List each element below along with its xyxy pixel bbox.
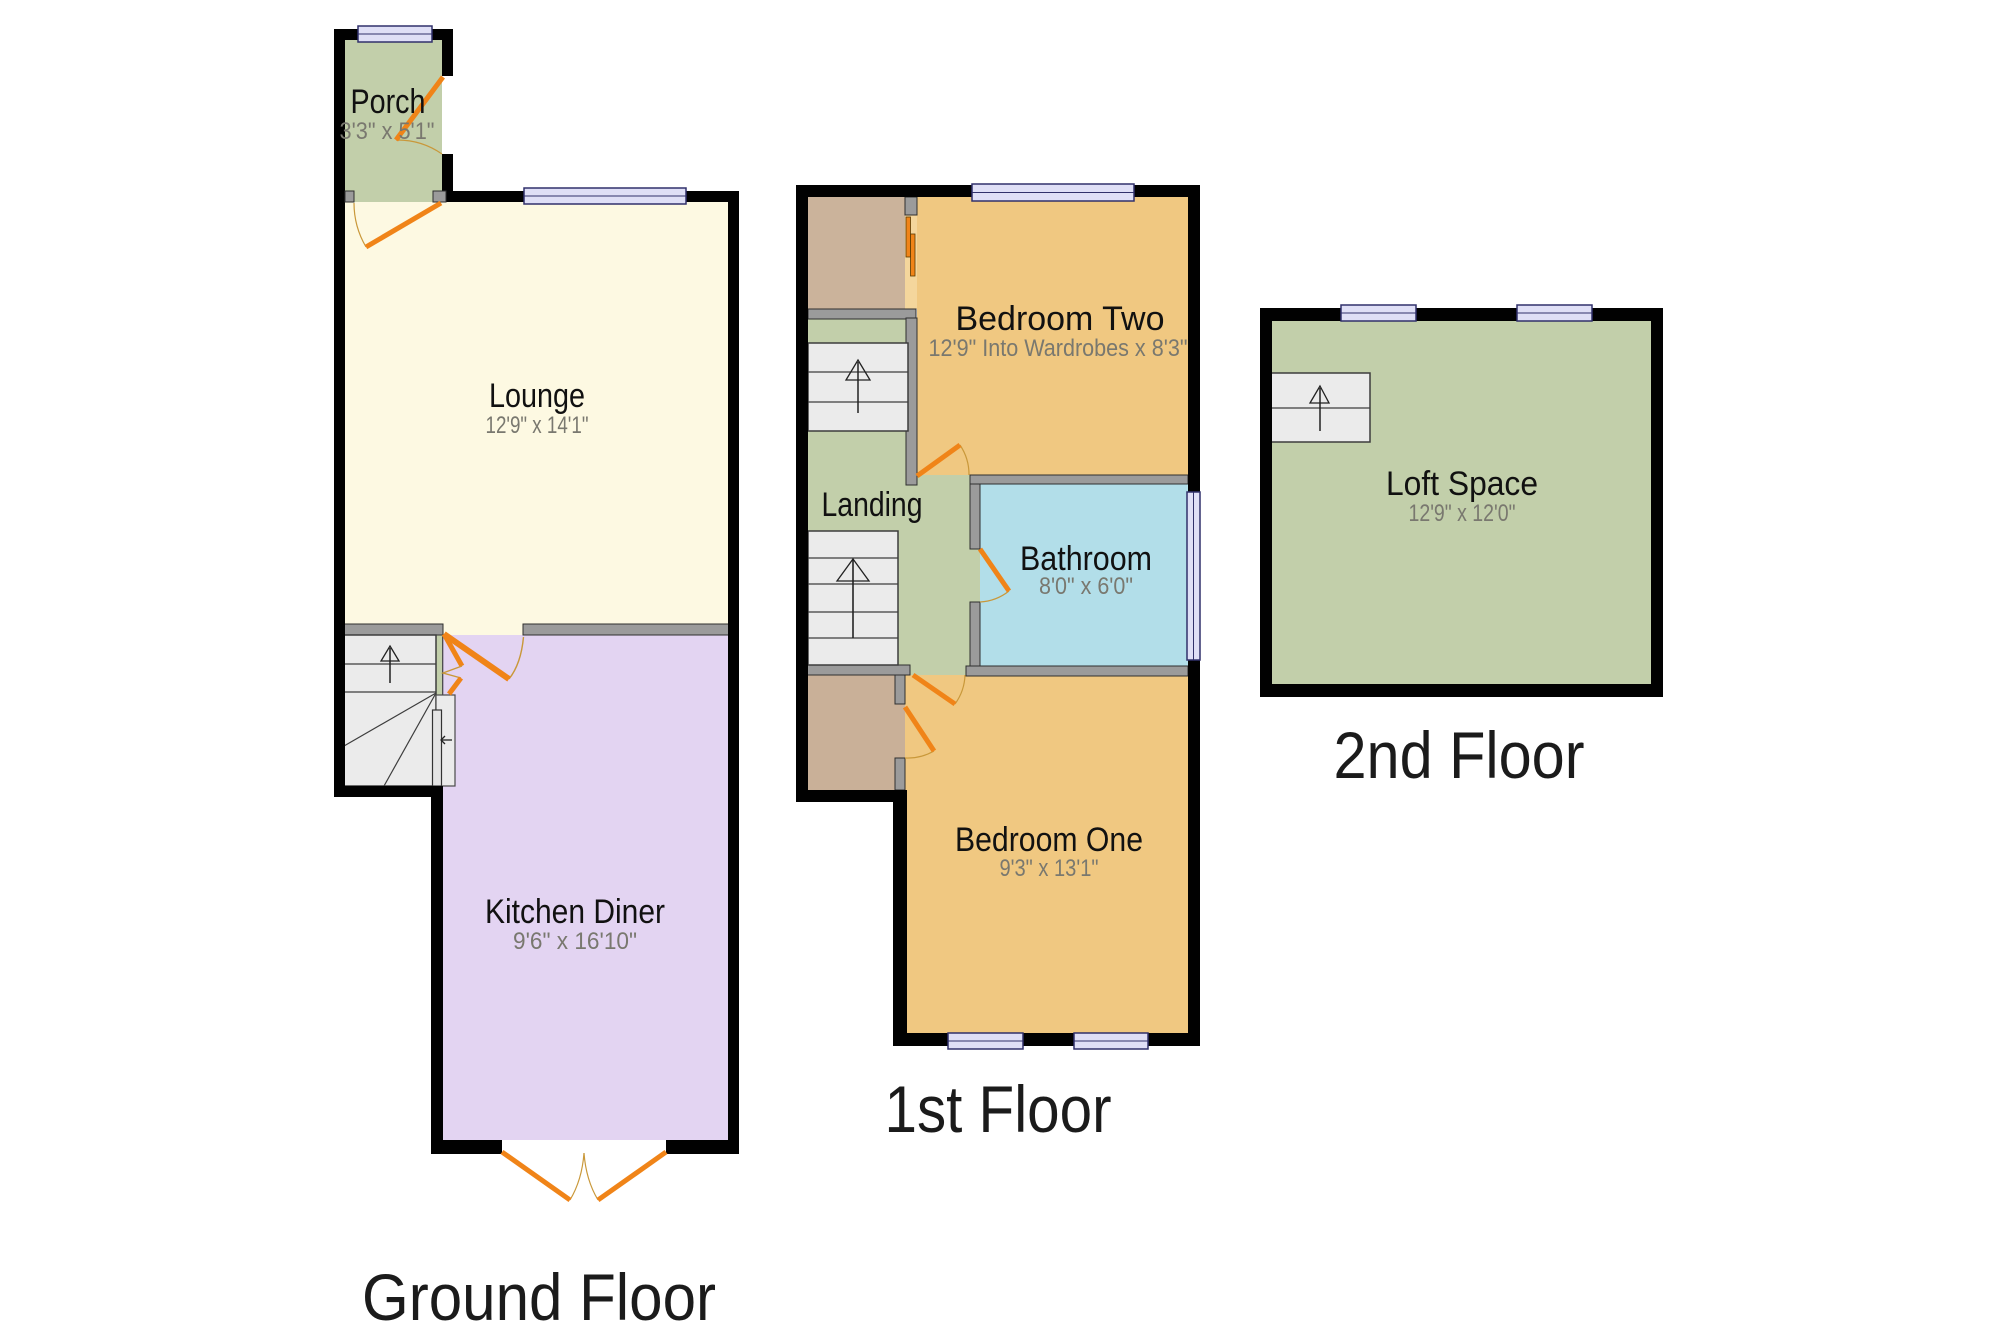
svg-text:12'9" Into Wardrobes x 8'3": 12'9" Into Wardrobes x 8'3" <box>929 335 1188 362</box>
svg-text:Bedroom Two: Bedroom Two <box>956 300 1165 338</box>
svg-text:8'0" x 6'0": 8'0" x 6'0" <box>1039 573 1133 600</box>
svg-text:3'3" x 5'1": 3'3" x 5'1" <box>340 118 435 145</box>
svg-text:9'6" x 16'10": 9'6" x 16'10" <box>513 928 637 955</box>
svg-text:1st Floor: 1st Floor <box>885 1072 1112 1146</box>
svg-text:Kitchen Diner: Kitchen Diner <box>485 893 665 931</box>
svg-text:2nd Floor: 2nd Floor <box>1334 718 1585 792</box>
svg-text:9'3" x 13'1": 9'3" x 13'1" <box>1000 855 1099 882</box>
svg-text:Porch: Porch <box>351 83 426 121</box>
svg-text:Lounge: Lounge <box>489 377 585 415</box>
svg-text:Loft Space: Loft Space <box>1386 465 1538 503</box>
svg-text:Landing: Landing <box>822 486 923 524</box>
svg-text:12'9" x 14'1": 12'9" x 14'1" <box>486 412 589 439</box>
svg-text:12'9" x 12'0": 12'9" x 12'0" <box>1409 500 1516 527</box>
svg-text:Ground Floor: Ground Floor <box>362 1260 716 1333</box>
svg-text:Bedroom One: Bedroom One <box>955 821 1143 859</box>
